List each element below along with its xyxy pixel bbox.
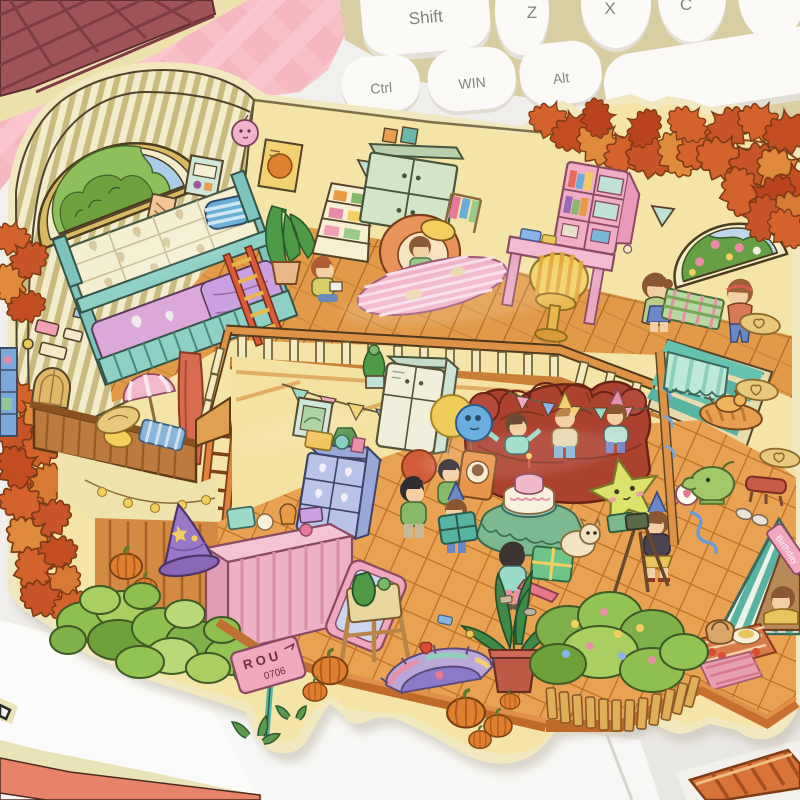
svg-text:Shift: Shift [408,7,444,29]
svg-text:WIN: WIN [458,74,487,92]
svg-text:C: C [680,0,692,14]
svg-text:Z: Z [527,3,537,22]
svg-text:X: X [604,0,615,18]
svg-text:Alt: Alt [552,69,570,87]
svg-text:Ctrl: Ctrl [370,79,393,97]
